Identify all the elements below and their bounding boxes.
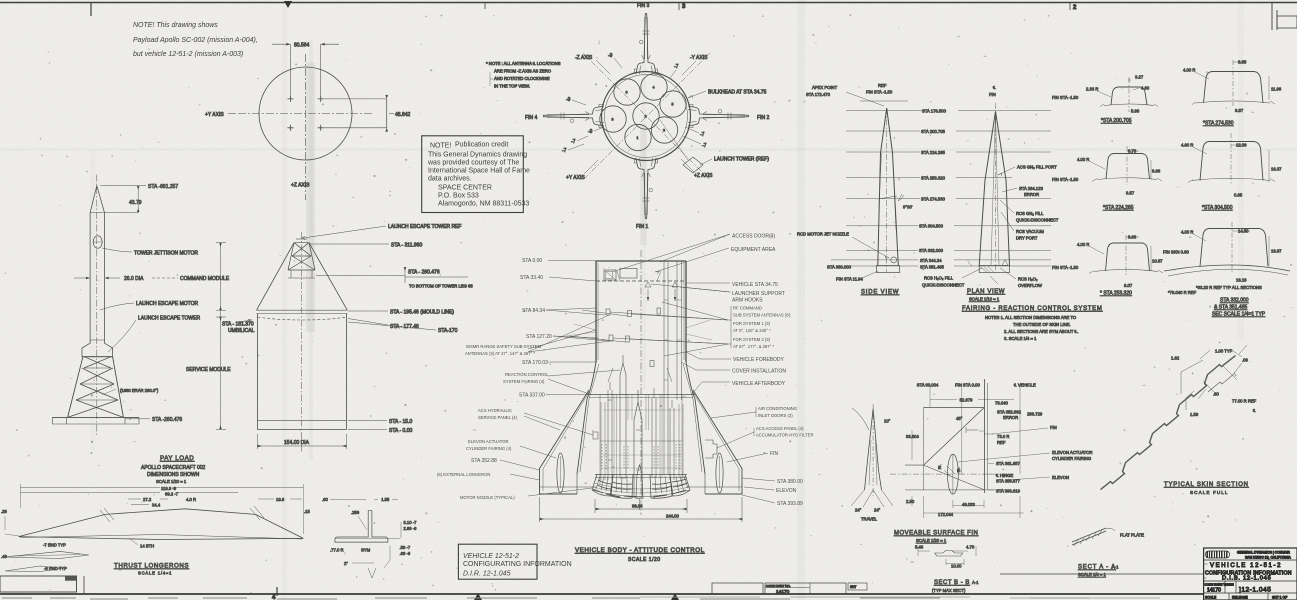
svg-text:2": 2" (344, 561, 348, 566)
svg-text:ERROR: ERROR (1024, 192, 1039, 197)
svg-text:ACS ACCESS PANEL (4): ACS ACCESS PANEL (4) (756, 426, 804, 431)
svg-text:CONFIGURATING INFORMATION: CONFIGURATING INFORMATION (463, 561, 572, 568)
svg-text:4.0 R: 4.0 R (186, 497, 196, 502)
svg-text:RCS H₂O₂: RCS H₂O₂ (1018, 277, 1038, 282)
svg-text:RELEASE: RELEASE (1232, 596, 1248, 600)
svg-text:STA 332.000: STA 332.000 (1220, 298, 1249, 304)
svg-text:STA 358.877: STA 358.877 (996, 478, 1021, 483)
svg-text:4: 4 (653, 86, 655, 90)
svg-text:TOWER JETTISON MOTOR: TOWER JETTISON MOTOR (134, 251, 198, 257)
svg-text:77.00 R REF: 77.00 R REF (1232, 399, 1257, 404)
svg-text:SCALE 1/20: SCALE 1/20 (628, 557, 661, 563)
svg-text:FIN STA 11.94: FIN STA 11.94 (836, 277, 864, 282)
svg-text:27.2: 27.2 (143, 497, 152, 502)
svg-text:STA -260.476: STA -260.476 (152, 417, 182, 423)
svg-text:was provided courtesy of The: was provided courtesy of The (427, 160, 519, 167)
svg-text:10°: 10° (884, 418, 891, 423)
svg-text:STA 352.882: STA 352.882 (997, 410, 1022, 415)
svg-text:9.87: 9.87 (1235, 108, 1244, 113)
svg-text:THE OUTSIDE OF SKIN LINE.: THE OUTSIDE OF SKIN LINE. (1013, 322, 1071, 327)
svg-text:-9: -9 (608, 53, 613, 59)
svg-text:ELEVON ACTUATOR: ELEVON ACTUATOR (1052, 450, 1093, 455)
svg-text:.28: .28 (1, 509, 7, 514)
svg-text:STA 84.34: STA 84.34 (522, 308, 545, 314)
svg-text:-Z AXIS: -Z AXIS (575, 55, 593, 61)
svg-text:VEHICLE AFTERBODY: VEHICLE AFTERBODY (732, 381, 786, 387)
svg-text:VEHICLE 12-51-2: VEHICLE 12-51-2 (1210, 563, 1282, 569)
svg-text:LAUNCH TOWER (REF): LAUNCH TOWER (REF) (714, 157, 769, 163)
svg-text:STA 393.619: STA 393.619 (996, 488, 1021, 493)
svg-text:+Z AXIS: +Z AXIS (694, 173, 713, 179)
svg-text:80.564: 80.564 (294, 43, 310, 49)
svg-text:SCALE 1/20 = 1: SCALE 1/20 = 1 (916, 538, 947, 543)
svg-text:9.57: 9.57 (1126, 191, 1135, 196)
svg-text:FIN 2: FIN 2 (757, 115, 769, 121)
svg-text:1.58: 1.58 (1190, 412, 1199, 417)
svg-text:ACS HYDRAULIC: ACS HYDRAULIC (478, 408, 512, 413)
svg-text:ERROR: ERROR (1003, 415, 1018, 420)
svg-text:9°30': 9°30' (903, 205, 913, 210)
svg-text:STA 304.500: STA 304.500 (919, 223, 944, 228)
svg-text:VEHICLE BODY - ATTITUDE CONT: VEHICLE BODY - ATTITUDE CONTROL (575, 547, 705, 554)
svg-text:*STA 304.500: *STA 304.500 (1202, 205, 1233, 211)
svg-text:3: 3 (663, 129, 665, 133)
svg-text:FIN STA -1.50: FIN STA -1.50 (1052, 95, 1079, 100)
svg-text:UMBILICAL: UMBILICAL (228, 328, 255, 334)
svg-text:FIN 4: FIN 4 (525, 115, 537, 121)
svg-text:STA 200.705: STA 200.705 (921, 129, 946, 134)
svg-text:BULKHEAD AT STA 34.75: BULKHEAD AT STA 34.75 (708, 90, 767, 96)
svg-text:LAUNCH ESCAPE TOWER: LAUNCH ESCAPE TOWER (138, 316, 200, 322)
svg-text:OVERFLOW: OVERFLOW (1018, 283, 1042, 288)
svg-text:(6) EXTERNAL LONGERON: (6) EXTERNAL LONGERON (437, 472, 490, 477)
svg-text:24°: 24° (855, 508, 862, 513)
svg-text:EQUIPMENT AREA: EQUIPMENT AREA (731, 247, 776, 253)
svg-text:FOR SYSTEM 2 (3): FOR SYSTEM 2 (3) (733, 337, 771, 342)
svg-text:STA -661.257: STA -661.257 (148, 184, 178, 190)
svg-text:STA 380.000: STA 380.000 (827, 264, 852, 269)
svg-text:.15: .15 (304, 509, 310, 514)
svg-text:RCS VACUUM: RCS VACUUM (1016, 229, 1044, 234)
svg-text:data archives.: data archives. (428, 176, 472, 183)
svg-text:-9: -9 (566, 97, 571, 103)
svg-text:ACCUMULATOR-HYD FILTER: ACCUMULATOR-HYD FILTER (756, 433, 813, 438)
svg-text:+Y AXIS: +Y AXIS (205, 112, 224, 118)
svg-text:9.66: 9.66 (1152, 169, 1161, 174)
svg-text:SYM: SYM (361, 548, 371, 553)
svg-text:TRAVEL: TRAVEL (861, 517, 878, 522)
svg-text:SCALE 1/4=1: SCALE 1/4=1 (138, 571, 172, 576)
svg-text:STA 93.004: STA 93.004 (917, 383, 939, 388)
svg-text:THRUST LONGERONS: THRUST LONGERONS (114, 563, 189, 570)
svg-text:48.842: 48.842 (395, 112, 411, 118)
svg-text:A-1: A-1 (972, 580, 979, 585)
svg-text:NOTES 1. ALL SECTION DIMENSI: NOTES 1. ALL SECTION DIMENSIONS ARE TO (985, 315, 1077, 320)
svg-text:FIN: FIN (989, 92, 996, 97)
svg-text:.60: .60 (322, 497, 328, 502)
svg-text:19.9: 19.9 (276, 497, 285, 502)
svg-text:.68 -9: .68 -9 (400, 551, 411, 556)
svg-text:11.98: 11.98 (1271, 87, 1282, 92)
svg-text:3. SCALE 1/4 = 1: 3. SCALE 1/4 = 1 (1004, 336, 1037, 341)
svg-text:QUICK-DISCONNECT: QUICK-DISCONNECT (1016, 218, 1059, 223)
svg-text:-Y AXIS: -Y AXIS (690, 55, 708, 61)
svg-text:STA - 311.960: STA - 311.960 (391, 243, 422, 249)
svg-text:SPACE CENTER: SPACE CENTER (438, 185, 492, 192)
svg-text:STA 127.20: STA 127.20 (526, 334, 552, 340)
svg-text:This General Dynamics drawing: This General Dynamics drawing (428, 152, 527, 159)
svg-text:3.10 -7: 3.10 -7 (403, 520, 417, 525)
svg-text:Alamogordo, NM 88311-0533: Alamogordo, NM 88311-0533 (438, 201, 529, 208)
svg-text:73.0 R: 73.0 R (997, 434, 1009, 439)
svg-text:4.00 R: 4.00 R (1183, 68, 1195, 73)
svg-text:1.00 TYP: 1.00 TYP (1215, 349, 1233, 354)
svg-text:CYLINDER FAIRING (4): CYLINDER FAIRING (4) (466, 446, 512, 451)
svg-text:STA-170: STA-170 (438, 328, 458, 334)
svg-text:-7 END TYP: -7 END TYP (43, 543, 66, 548)
svg-text:FIN: FIN (770, 451, 778, 457)
svg-text:VEHICLE FOREBODY: VEHICLE FOREBODY (733, 357, 785, 363)
svg-text:SCALE 1/10 = 1: SCALE 1/10 = 1 (969, 297, 1000, 302)
svg-text:REF: REF (878, 83, 887, 88)
svg-text:.56 -7: .56 -7 (400, 545, 411, 550)
svg-text:.77.0 R: .77.0 R (330, 548, 344, 553)
svg-text:AIR CONDITIONING: AIR CONDITIONING (758, 406, 797, 411)
svg-text:CODE IDENT NO.: CODE IDENT NO. (766, 584, 791, 588)
svg-text:P.O. Box 533: P.O. Box 533 (438, 193, 479, 200)
svg-text:CODE IDENT NO.: CODE IDENT NO. (1205, 583, 1230, 587)
svg-text:AT 0°, 120° & 240° *: AT 0°, 120° & 240° * (733, 328, 771, 333)
svg-text:STA 170.03: STA 170.03 (522, 360, 548, 366)
svg-text:RCS GN₂ FILL: RCS GN₂ FILL (1016, 211, 1044, 216)
svg-text:QUICK-DISCONNECT: QUICK-DISCONNECT (922, 283, 965, 288)
svg-text:DRY PORT: DRY PORT (1016, 236, 1038, 241)
svg-text:AND ROTATED CLOCKWISE: AND ROTATED CLOCKWISE (494, 76, 550, 81)
svg-text:5: 5 (672, 103, 674, 107)
svg-text:LAUNCHER SUPPORT: LAUNCHER SUPPORT (732, 291, 785, 297)
svg-text:COVER INSTALLATION: COVER INSTALLATION (732, 369, 786, 375)
svg-text:4.60 R: 4.60 R (1181, 143, 1193, 148)
svg-text:APOLLO SPACECRAFT 002: APOLLO SPACECRAFT 002 (141, 465, 206, 471)
svg-text:SCALE: SCALE (1205, 596, 1217, 600)
svg-text:STA 351.485: STA 351.485 (920, 265, 945, 270)
svg-text:FIN STA -1.50: FIN STA -1.50 (1052, 177, 1079, 182)
svg-text:(1680 ERAR 260.0°): (1680 ERAR 260.0°) (120, 388, 159, 393)
svg-text:14170: 14170 (1207, 588, 1221, 594)
svg-text:STA 176.500: STA 176.500 (922, 109, 947, 114)
svg-text:DIMENSIONS SHOWN: DIMENSIONS SHOWN (147, 472, 200, 478)
svg-text:*STA 274.530: *STA 274.530 (1203, 121, 1234, 127)
svg-text:SECT B - B: SECT B - B (934, 580, 970, 586)
svg-text:SIZE: SIZE (1227, 583, 1234, 587)
svg-text:ACCESS DOOR(3): ACCESS DOOR(3) (732, 234, 775, 240)
svg-text:STA 253.320: STA 253.320 (921, 176, 946, 181)
svg-text:ARM HOOKS: ARM HOOKS (732, 298, 763, 304)
svg-text:.60: .60 (1213, 392, 1219, 397)
svg-text:SCALE 1/20 = 1: SCALE 1/20 = 1 (156, 479, 187, 484)
svg-text:STA 332.000: STA 332.000 (919, 248, 944, 253)
svg-text:4.60: 4.60 (1141, 86, 1150, 91)
svg-text:2. ALL SECTIONS ARE SYM ABOUT: 2. ALL SECTIONS ARE SYM ABOUT ℄. (1004, 329, 1078, 334)
svg-text:+Z AXIS: +Z AXIS (291, 183, 310, 189)
svg-text:FLAT PLATE: FLAT PLATE (1120, 533, 1144, 538)
svg-text:FIN STA -1.50: FIN STA -1.50 (866, 90, 893, 95)
svg-text:FIN STA 0.00: FIN STA 0.00 (955, 383, 980, 388)
svg-text:SIDE VIEW: SIDE VIEW (861, 290, 899, 296)
svg-text:FIN 1: FIN 1 (636, 224, 648, 230)
svg-text:SYSTEM FAIRING (4): SYSTEM FAIRING (4) (503, 379, 545, 384)
svg-text:.46: .46 (1, 554, 7, 559)
svg-text:154.00 DIA: 154.00 DIA (284, 440, 310, 446)
svg-text:52.679: 52.679 (960, 398, 973, 403)
svg-text:STA 352.88: STA 352.88 (471, 458, 497, 464)
svg-text:2.50: 2.50 (906, 499, 915, 504)
svg-text:14 BTH: 14 BTH (140, 544, 154, 549)
svg-text:0.65: 0.65 (1234, 193, 1243, 198)
svg-text:& STA 351.485: & STA 351.485 (1214, 305, 1247, 311)
svg-text:℄ HINGE: ℄ HINGE (995, 473, 1013, 478)
svg-text:SERVICE PANEL (4): SERVICE PANEL (4) (478, 415, 518, 420)
svg-text:*33.20 R REF TYP ALL SECTIONS: *33.20 R REF TYP ALL SECTIONS (1196, 285, 1262, 290)
svg-text:79.040: 79.040 (995, 401, 1008, 406)
svg-text:SCALE 1/4 = 1: SCALE 1/4 = 1 (1078, 572, 1106, 577)
svg-text:APEX POINT: APEX POINT (812, 85, 838, 90)
svg-text:-9: -9 (588, 129, 593, 135)
svg-text:2.89 -9: 2.89 -9 (403, 526, 417, 531)
svg-text:+Y AXIS: +Y AXIS (566, 175, 585, 181)
svg-text:STA 0.00: STA 0.00 (522, 258, 542, 264)
svg-text:5.46: 5.46 (915, 545, 924, 550)
svg-text:SERVICE MODULE: SERVICE MODULE (186, 367, 231, 373)
svg-text:-7: -7 (702, 143, 707, 149)
svg-text:STA 33.40: STA 33.40 (520, 275, 543, 281)
svg-text:AT 87°, 177°, & 297° *: AT 87°, 177°, & 297° * (733, 344, 775, 349)
svg-text:93.604: 93.604 (906, 434, 919, 439)
svg-text:96.00: 96.00 (632, 504, 643, 509)
svg-text:STA 224.265: STA 224.265 (921, 150, 946, 155)
svg-text:.259: .259 (351, 510, 360, 515)
svg-text:* NOTE : ALL ANTENNA ℄ LOCATIO: * NOTE : ALL ANTENNA ℄ LOCATIONS (486, 61, 561, 66)
svg-text:STA 380.00: STA 380.00 (777, 479, 803, 485)
svg-text:GENERAL DYNAMICS | CONVAIR: GENERAL DYNAMICS | CONVAIR (1237, 551, 1290, 555)
svg-text:COMMAND MODULE: COMMAND MODULE (180, 276, 230, 282)
svg-text:SCALE FULL: SCALE FULL (1190, 490, 1229, 495)
svg-text:IN THE TOP VIEW.: IN THE TOP VIEW. (494, 84, 530, 89)
svg-text:NOTE!: NOTE! (430, 143, 451, 150)
svg-text:4.00 R: 4.00 R (1181, 230, 1193, 235)
svg-text:TO BOTTOM OF TOWER LEG 95: TO BOTTOM OF TOWER LEG 95 (409, 284, 473, 289)
svg-text:43.79: 43.79 (129, 200, 142, 206)
svg-text:STA 337.00: STA 337.00 (519, 393, 545, 399)
svg-text:286.729: 286.729 (1027, 412, 1043, 417)
svg-text:VEHICLE 12-51-2: VEHICLE 12-51-2 (463, 553, 519, 560)
svg-text:STA - 15.0: STA - 15.0 (389, 419, 412, 425)
svg-text:℄: ℄ (1252, 408, 1256, 413)
svg-text:24°: 24° (874, 508, 881, 513)
svg-text:International Space Hall of Fa: International Space Hall of Fame (428, 168, 530, 175)
svg-text:4.00 R: 4.00 R (1077, 157, 1089, 162)
svg-text:(TYP MAX SECT): (TYP MAX SECT) (932, 588, 966, 593)
svg-text:-7: -7 (700, 132, 705, 138)
svg-text:FOR SYSTEM 1 (3): FOR SYSTEM 1 (3) (733, 321, 771, 326)
svg-text:172.044: 172.044 (938, 512, 954, 517)
svg-text:*STA 224.265: *STA 224.265 (1103, 205, 1134, 211)
svg-text:2.33 R: 2.33 R (1086, 87, 1098, 92)
svg-text:3.27: 3.27 (1135, 75, 1144, 80)
svg-text:34.4: 34.4 (152, 502, 161, 507)
svg-text:16.97: 16.97 (1271, 249, 1282, 254)
svg-text:*79.040 R REF: *79.040 R REF (1168, 290, 1197, 295)
svg-text:ELEVON: ELEVON (1052, 475, 1069, 480)
svg-text:VEHICLE STA 34.75: VEHICLE STA 34.75 (732, 282, 778, 288)
svg-text:1.55: 1.55 (381, 497, 390, 502)
svg-text:14170: 14170 (776, 589, 790, 595)
svg-text:SHT: SHT (850, 585, 856, 589)
svg-text:26.0 DIA: 26.0 DIA (124, 276, 144, 282)
svg-text:STA - 181.370: STA - 181.370 (222, 322, 254, 328)
svg-text:ELEVON: ELEVON (776, 488, 797, 494)
svg-text:INLET DOORS (3): INLET DOORS (3) (758, 413, 793, 418)
svg-text:℄: ℄ (992, 85, 996, 90)
svg-text:STA 172.470: STA 172.470 (806, 92, 831, 97)
svg-text:244.00: 244.00 (666, 514, 679, 519)
svg-text:6: 6 (626, 91, 628, 95)
svg-text:119.9 -9: 119.9 -9 (161, 486, 177, 491)
svg-text:STA 264.123: STA 264.123 (1019, 186, 1044, 191)
svg-text:FIN: FIN (1050, 425, 1057, 430)
svg-text:NOTE! This drawing shows: NOTE! This drawing shows (133, 22, 218, 29)
svg-text:℄ VEHICLE: ℄ VEHICLE (1013, 383, 1036, 388)
svg-text:STA - 195.46 (MOULD LINE): STA - 195.46 (MOULD LINE) (390, 310, 454, 316)
svg-text:LAUNCH ESCAPE TOWER REF: LAUNCH ESCAPE TOWER REF (388, 224, 461, 230)
svg-text:RCS H₂O₂ FILL: RCS H₂O₂ FILL (924, 276, 954, 281)
svg-text:PLAN VIEW: PLAN VIEW (967, 289, 1005, 295)
svg-text:SUB SYSTEM ANTENNAS (8):: SUB SYSTEM ANTENNAS (8): (733, 313, 791, 318)
svg-text:D.I.R. 12-1.045: D.I.R. 12-1.045 (463, 571, 511, 578)
svg-text:10.00: 10.00 (951, 564, 962, 569)
svg-text:MOVEABLE SURFACE FIN: MOVEABLE SURFACE FIN (894, 531, 978, 537)
svg-text:-7: -7 (571, 139, 576, 145)
svg-text:ANTENNAS (3) AT 27°, 147° & 26: ANTENNAS (3) AT 27°, 147° & 267° * (465, 351, 535, 356)
svg-text:16.37: 16.37 (1271, 167, 1282, 172)
svg-text:TYPICAL SKIN SECTION: TYPICAL SKIN SECTION (1164, 482, 1249, 488)
svg-text:.06: .06 (1242, 358, 1248, 363)
svg-text:Payload Apollo SC-002 (mission: Payload Apollo SC-002 (mission A-004), (133, 37, 258, 44)
svg-text:16.16: 16.16 (1236, 278, 1247, 283)
svg-text:8: 8 (612, 118, 614, 122)
svg-text:STA 274.530: STA 274.530 (921, 197, 946, 202)
svg-text:69.2 -7: 69.2 -7 (165, 491, 179, 496)
svg-text:1.62: 1.62 (1171, 356, 1180, 361)
svg-text:Publication credit: Publication credit (455, 142, 508, 149)
svg-text:* STA 253.320: * STA 253.320 (1100, 291, 1132, 297)
svg-text:STA - 260.476: STA - 260.476 (408, 270, 440, 276)
svg-text:STA 361.657: STA 361.657 (996, 461, 1021, 466)
svg-text:FIN 3: FIN 3 (637, 3, 649, 9)
svg-text:49.033: 49.033 (962, 502, 975, 507)
svg-text:SECT A - A: SECT A - A (1078, 565, 1116, 571)
svg-text:RF COMMAND: RF COMMAND (733, 306, 762, 311)
svg-text:D.I.B. 12-1.045: D.I.B. 12-1.045 (1222, 576, 1272, 582)
svg-text:4.00 R: 4.00 R (1077, 242, 1089, 247)
svg-text:RCD MOTOR JET NOZZLE: RCD MOTOR JET NOZZLE (797, 232, 849, 237)
svg-text:STA 344.34: STA 344.34 (920, 258, 942, 263)
svg-text:10.87: 10.87 (1152, 259, 1163, 264)
svg-text:]12-1.045: ]12-1.045 (1239, 587, 1271, 594)
svg-text:ARE FROM -Z AXIS AS ZERO: ARE FROM -Z AXIS AS ZERO (494, 69, 552, 74)
svg-text:REACTION CONTROL: REACTION CONTROL (505, 372, 549, 377)
svg-text:4.78: 4.78 (966, 545, 975, 550)
svg-text:FAIRING - REACTION CONTROL SYS: FAIRING - REACTION CONTROL SYSTEM (962, 306, 1103, 312)
svg-text:-7: -7 (674, 64, 679, 70)
svg-text:PAY LOAD: PAY LOAD (160, 455, 194, 462)
svg-text:ELEVON ACTUATOR: ELEVON ACTUATOR (468, 439, 509, 444)
svg-text:45°: 45° (956, 416, 963, 421)
svg-text:SHT 1 OF: SHT 1 OF (1272, 596, 1287, 600)
svg-text:STA 393.89: STA 393.89 (777, 501, 803, 507)
svg-text:FIN STA -1.50: FIN STA -1.50 (1052, 265, 1079, 270)
svg-text:-9 END TYP: -9 END TYP (44, 566, 67, 571)
svg-text:9.07: 9.07 (1124, 283, 1133, 288)
svg-text:5.68: 5.68 (1131, 109, 1140, 114)
svg-text:FIN SKN 0.60: FIN SKN 0.60 (1163, 250, 1190, 255)
svg-text:-7: -7 (562, 148, 567, 154)
svg-text:but vehicle 12-51-2 (mission A: but vehicle 12-51-2 (mission A-003) (133, 51, 243, 58)
svg-text:ACS GN₂ FILL PORT: ACS GN₂ FILL PORT (1017, 165, 1057, 170)
svg-text:CYLINDER FAIRING: CYLINDER FAIRING (1052, 456, 1091, 461)
svg-text:SEC SCALE 1/4=1 TYP: SEC SCALE 1/4=1 TYP (1212, 312, 1266, 318)
svg-text:A-1: A-1 (1112, 565, 1119, 570)
svg-text:REF: REF (997, 440, 1006, 445)
svg-text:1: 1 (637, 136, 639, 140)
svg-text:LAUNCH ESCAPE MOTOR: LAUNCH ESCAPE MOTOR (136, 301, 199, 307)
svg-text:MOTOR NOZZLE (TYPICAL): MOTOR NOZZLE (TYPICAL) (460, 495, 515, 500)
svg-text:STA - 0.00: STA - 0.00 (389, 428, 412, 434)
svg-text:SAN DIEGO 12, CALIFORNIA: SAN DIEGO 12, CALIFORNIA (1245, 556, 1292, 560)
svg-text:*STA 200.705: *STA 200.705 (1101, 118, 1132, 124)
